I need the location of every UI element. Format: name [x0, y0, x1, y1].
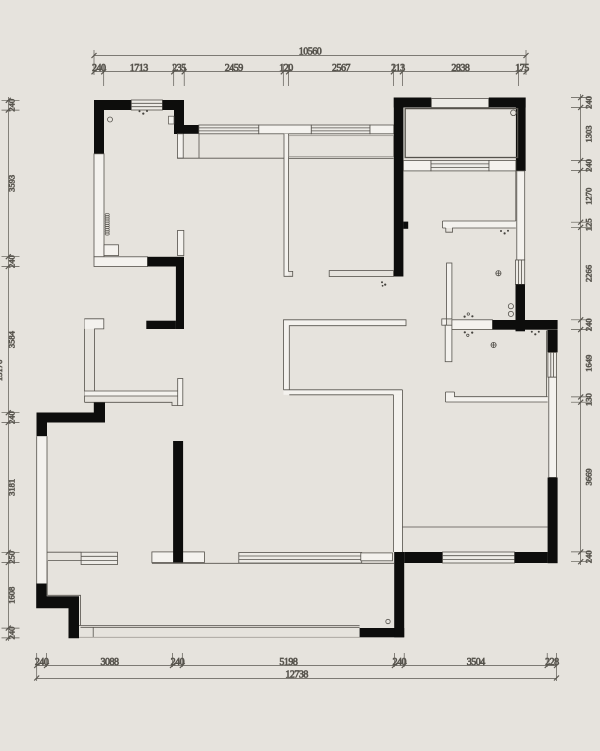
svg-text:1270: 1270: [583, 188, 593, 205]
svg-text:120: 120: [279, 63, 293, 74]
svg-text:3088: 3088: [101, 657, 120, 668]
svg-text:12738: 12738: [285, 670, 308, 681]
svg-text:1608: 1608: [6, 587, 16, 604]
svg-text:1649: 1649: [583, 355, 593, 372]
svg-text:10560: 10560: [299, 46, 322, 57]
svg-text:2838: 2838: [451, 63, 470, 74]
svg-text:240: 240: [6, 411, 16, 424]
svg-text:250: 250: [6, 551, 16, 564]
svg-text:13176: 13176: [0, 360, 4, 381]
svg-text:240: 240: [92, 63, 106, 74]
svg-text:2459: 2459: [225, 63, 244, 74]
svg-text:3669: 3669: [583, 469, 593, 486]
svg-text:240: 240: [583, 318, 593, 331]
svg-text:125: 125: [583, 218, 593, 231]
svg-text:3584: 3584: [6, 330, 16, 348]
svg-text:175: 175: [515, 63, 529, 74]
svg-text:240: 240: [583, 159, 593, 172]
svg-text:2266: 2266: [583, 265, 593, 282]
svg-text:2567: 2567: [332, 63, 351, 74]
svg-text:240: 240: [6, 627, 16, 640]
svg-text:3504: 3504: [467, 657, 486, 668]
svg-text:1713: 1713: [130, 63, 149, 74]
svg-text:240: 240: [35, 657, 49, 668]
svg-text:240: 240: [393, 657, 407, 668]
svg-text:235: 235: [172, 63, 186, 74]
svg-text:240: 240: [6, 99, 16, 112]
svg-text:228: 228: [545, 657, 559, 668]
svg-text:3593: 3593: [6, 175, 16, 192]
svg-text:5198: 5198: [279, 657, 298, 668]
svg-text:130: 130: [583, 393, 593, 406]
svg-text:240: 240: [171, 657, 185, 668]
svg-text:240: 240: [583, 550, 593, 563]
svg-text:240: 240: [583, 96, 593, 109]
svg-text:213: 213: [391, 63, 405, 74]
svg-text:3181: 3181: [6, 479, 16, 496]
svg-text:1303: 1303: [583, 126, 593, 143]
svg-text:240: 240: [6, 255, 16, 268]
